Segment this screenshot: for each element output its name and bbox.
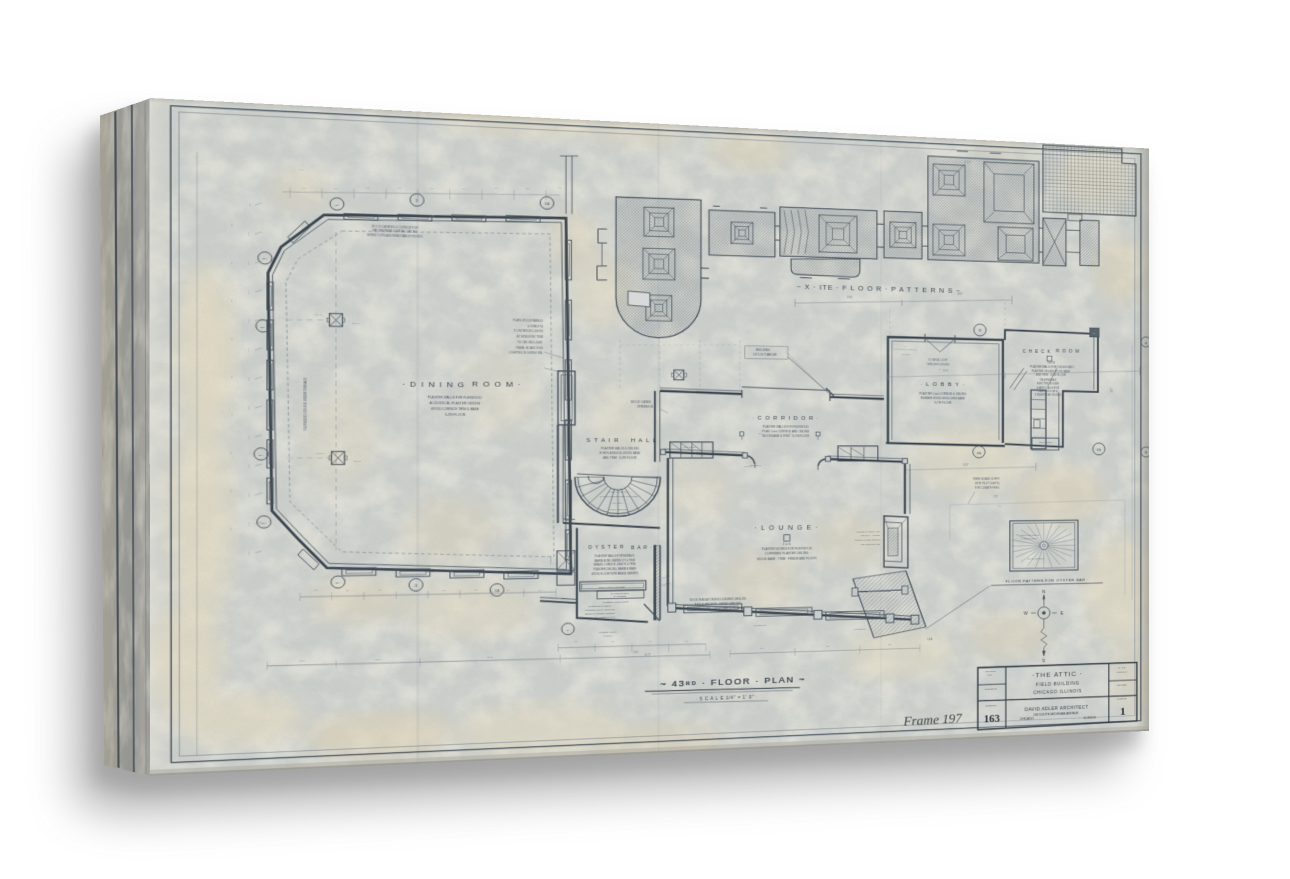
svg-text:3'6: 3'6 xyxy=(230,527,233,530)
svg-text:5'0": 5'0" xyxy=(247,261,251,265)
svg-text:7B: 7B xyxy=(978,330,981,333)
svg-text:AND IRON GRATE: AND IRON GRATE xyxy=(860,542,880,546)
svg-text:19'6": 19'6" xyxy=(957,292,964,295)
svg-text:AND TRIM · X-ITE FLOOR: AND TRIM · X-ITE FLOOR xyxy=(1036,373,1067,377)
svg-text:13 A: 13 A xyxy=(927,637,932,640)
svg-text:PRIV. BOOTH: PRIV. BOOTH xyxy=(683,447,696,449)
svg-text:5'0: 5'0 xyxy=(888,642,891,645)
svg-text:CHICAGO: CHICAGO xyxy=(1020,717,1034,721)
svg-text:DRAWN BY: DRAWN BY xyxy=(986,670,997,673)
svg-text:X-ITE FLOOR: X-ITE FLOOR xyxy=(445,413,466,417)
svg-text:5'0": 5'0" xyxy=(247,435,251,439)
svg-text:S: S xyxy=(1042,659,1045,664)
svg-text:STONE MANTEL AND: STONE MANTEL AND xyxy=(856,530,880,534)
svg-text:5'0: 5'0 xyxy=(494,186,498,190)
svg-text:PLASTER CEMENT STEEL FLEXWOOD: PLASTER CEMENT STEEL FLEXWOOD xyxy=(600,495,639,498)
svg-text:3'6: 3'6 xyxy=(230,299,233,302)
svg-text:5'0": 5'0" xyxy=(247,464,251,468)
svg-text:66 TB: 66 TB xyxy=(1043,445,1049,447)
svg-text:26A: 26A xyxy=(262,521,267,525)
svg-text:SHELF PANEL MLDGS: SHELF PANEL MLDGS xyxy=(855,538,880,542)
svg-text:5'0: 5'0 xyxy=(826,644,829,647)
svg-text:BY OWNERS: BY OWNERS xyxy=(614,596,627,598)
svg-text:3'6: 3'6 xyxy=(230,375,233,378)
svg-text:PLASTER WALLS FOR MURALS,: PLASTER WALLS FOR MURALS, xyxy=(595,554,635,558)
svg-text:5'0: 5'0 xyxy=(685,639,689,642)
svg-text:1: 1 xyxy=(1120,705,1126,718)
svg-text:31: 31 xyxy=(415,199,418,203)
svg-text:OPENING W: OPENING W xyxy=(637,405,653,409)
svg-text:10'6 W: 10'6 W xyxy=(1047,362,1055,365)
svg-text:5'0": 5'0" xyxy=(247,203,251,207)
svg-text:WOOD ·CASED: WOOD ·CASED xyxy=(631,400,652,404)
svg-text:5'0": 5'0" xyxy=(247,377,251,381)
svg-text:N: N xyxy=(1042,590,1045,595)
svg-text:E: E xyxy=(1060,612,1063,617)
svg-text:PLASTER Cove CORNICE & CEILING: PLASTER Cove CORNICE & CEILING xyxy=(919,392,966,396)
svg-text:5'0: 5'0 xyxy=(334,186,338,190)
svg-text:5'0": 5'0" xyxy=(247,493,251,497)
svg-text:5'8: 5'8 xyxy=(648,639,652,642)
svg-text:7'4": 7'4" xyxy=(300,167,305,171)
svg-text:MARBLEIZED WAINSCOT & TRIM: MARBLEIZED WAINSCOT & TRIM xyxy=(594,558,635,562)
svg-text:BRASS STRIPS W: BRASS STRIPS W xyxy=(1027,557,1045,560)
svg-text:K.E.M.: K.E.M. xyxy=(987,675,993,677)
svg-text:CUT-OUT ABOVE: CUT-OUT ABOVE xyxy=(753,353,778,357)
svg-text:X-ITE FLOOR: X-ITE FLOOR xyxy=(934,401,952,404)
svg-text:WOOD BASE & TRIM · X-ITE FLOOR: WOOD BASE & TRIM · X-ITE FLOOR xyxy=(762,434,810,437)
svg-text:TO METAL LIGHT: TO METAL LIGHT xyxy=(928,358,948,362)
svg-text:19'6": 19'6" xyxy=(1069,366,1075,369)
svg-text:24: 24 xyxy=(414,584,417,588)
svg-text:3'6: 3'6 xyxy=(230,223,233,226)
svg-text:5'0: 5'0 xyxy=(526,186,530,190)
svg-text:D A T E: D A T E xyxy=(1118,666,1125,669)
svg-text:JAN 31,1934: JAN 31,1934 xyxy=(1117,671,1128,674)
svg-text:FREE WOOD RAIL: FREE WOOD RAIL xyxy=(609,491,629,494)
svg-text:TILE RISERS & TREADS: TILE RISERS & TREADS xyxy=(606,512,630,515)
svg-text:CLOSED ABOVE: CLOSED ABOVE xyxy=(599,631,617,634)
svg-text:4A: 4A xyxy=(1145,452,1148,455)
svg-text:· O Y S T E R: · O Y S T E R xyxy=(583,545,624,551)
svg-text:14'1 3/4: 14'1 3/4 xyxy=(902,352,911,355)
svg-text:31'9": 31'9" xyxy=(633,651,639,655)
svg-text:CAP: CAP xyxy=(666,575,671,578)
svg-text:163: 163 xyxy=(984,712,1000,725)
svg-text:· L O B B Y ·: · L O B B Y · xyxy=(920,382,965,388)
svg-text:5'0: 5'0 xyxy=(430,186,434,190)
svg-text:W: W xyxy=(939,368,942,371)
svg-text:BENCH CABINET FRONTS: BENCH CABINET FRONTS xyxy=(585,612,615,616)
svg-text:RUBBER TILE FLOOR: RUBBER TILE FLOOR xyxy=(603,600,629,604)
svg-text:10'6": 10'6" xyxy=(375,657,381,661)
svg-text:5'0: 5'0 xyxy=(462,186,466,190)
svg-text:LIGHTING IN DINING RM.: LIGHTING IN DINING RM. xyxy=(509,351,543,355)
svg-text:4'6: 4'6 xyxy=(903,345,906,348)
svg-text:5'0": 5'0" xyxy=(247,551,251,555)
svg-text:GREY PINK & BUFF: GREY PINK & BUFF xyxy=(1021,534,1040,537)
svg-text:5'0": 5'0" xyxy=(247,232,251,236)
svg-text:WOOD CORNICE TRIM & BASE: WOOD CORNICE TRIM & BASE xyxy=(431,407,480,411)
svg-text:FLOORING PANELS,: FLOORING PANELS, xyxy=(588,604,611,608)
svg-text:TO INTERIOR LIGHTS: TO INTERIOR LIGHTS xyxy=(514,330,543,334)
svg-text:COFFERED PLASTER CEILING: COFFERED PLASTER CEILING xyxy=(765,552,809,556)
svg-text:10'6 W: 10'6 W xyxy=(354,461,362,463)
svg-text:ORDER NO: ORDER NO xyxy=(985,705,996,708)
svg-text:4A: 4A xyxy=(1145,342,1148,345)
svg-text:PLASTER WALLS FOR FLEXWOOD: PLASTER WALLS FOR FLEXWOOD xyxy=(763,425,809,429)
svg-text:FOR FLEXWOOD WOOD BASE: FOR FLEXWOOD WOOD BASE xyxy=(599,452,640,455)
svg-text:WITH PILOT LIGHTS,: WITH PILOT LIGHTS, xyxy=(975,482,1000,485)
svg-text:5'0: 5'0 xyxy=(398,186,402,190)
svg-text:28A: 28A xyxy=(260,325,265,329)
svg-text:PLAS. Cove CORNICE AND CEILING: PLAS. Cove CORNICE AND CEILING xyxy=(762,430,809,433)
svg-text:R O O M: R O O M xyxy=(1056,350,1080,355)
svg-text:AT ELEV.: AT ELEV. xyxy=(603,635,613,638)
svg-text:3'6: 3'6 xyxy=(230,413,233,416)
svg-text:CREAM PILE COUNTER: CREAM PILE COUNTER xyxy=(598,585,625,589)
svg-text:FOR CLIMATE FEED.: FOR CLIMATE FEED. xyxy=(975,486,1000,489)
svg-text:SHEET No: SHEET No xyxy=(1117,697,1127,701)
svg-text:10'6 W: 10'6 W xyxy=(317,453,325,455)
svg-text:5'0: 5'0 xyxy=(760,646,764,649)
svg-text:8 5a W: 8 5a W xyxy=(783,542,791,545)
svg-text:46A: 46A xyxy=(977,452,981,455)
svg-text:24'0": 24'0" xyxy=(487,655,493,659)
svg-text:H A L L: H A L L xyxy=(631,438,657,444)
svg-text:10'6": 10'6" xyxy=(963,464,969,467)
svg-text:B A R ·: B A R · xyxy=(631,545,652,550)
svg-text:ACOUSTICAL PLASTER CEILING: ACOUSTICAL PLASTER CEILING xyxy=(430,402,481,406)
svg-text:COAT ROOM: COAT ROOM xyxy=(1039,441,1053,444)
svg-text:· C O R R I D O R ·: · C O R R I D O R · xyxy=(752,416,819,422)
svg-text:FIBRE BOARD SOFFIT: FIBRE BOARD SOFFIT xyxy=(973,478,1000,481)
svg-text:5'0: 5'0 xyxy=(558,186,562,190)
svg-text:3'6: 3'6 xyxy=(758,431,761,434)
svg-text:C H E C K: C H E C K xyxy=(1023,350,1052,355)
svg-text:5'0: 5'0 xyxy=(538,588,542,592)
svg-text:5'0": 5'0" xyxy=(247,406,251,410)
svg-text:W: W xyxy=(999,505,1001,508)
svg-text:FLEXWOOD CEILING UNDER TERR: FLEXWOOD CEILING UNDER TERRACE xyxy=(304,377,308,430)
svg-text:WOOD NOSINGS: WOOD NOSINGS xyxy=(609,508,628,511)
svg-text:RUBBER WOOD MOULDING BASE: RUBBER WOOD MOULDING BASE xyxy=(921,397,966,401)
svg-text:12'6": 12'6" xyxy=(993,495,998,498)
svg-text:25A: 25A xyxy=(336,581,341,585)
svg-text:CTR: CTR xyxy=(666,583,671,585)
svg-text:BAR EQUIPMENT: BAR EQUIPMENT xyxy=(611,592,630,595)
svg-text:BRASS W: BRASS W xyxy=(751,463,762,466)
svg-text:BUILDING: BUILDING xyxy=(756,348,770,352)
svg-text:32A: 32A xyxy=(335,203,340,207)
svg-text:5'0": 5'0" xyxy=(247,319,251,323)
svg-text:5'0: 5'0 xyxy=(506,589,510,592)
svg-text:19'6": 19'6" xyxy=(943,369,949,372)
svg-text:23A: 23A xyxy=(495,589,500,593)
svg-text:VENTILATE UNDER BAR W: VENTILATE UNDER BAR W xyxy=(585,615,616,619)
svg-text:5'0": 5'0" xyxy=(247,348,251,352)
svg-text:TO CEILING LIGHT.: TO CEILING LIGHT. xyxy=(517,341,543,345)
svg-text:MARBLE FLOOR: MARBLE FLOOR xyxy=(1021,538,1037,541)
svg-text:5'0": 5'0" xyxy=(247,290,251,294)
svg-text:· D I N I N G: · D I N I N G xyxy=(402,380,465,389)
svg-text:AT WINDOWS TRIM: AT WINDOWS TRIM xyxy=(517,335,544,339)
svg-text:6'10": 6'10" xyxy=(299,659,305,663)
svg-text:3'6: 3'6 xyxy=(230,261,233,264)
svg-text:PROJECTS: PROJECTS xyxy=(854,627,866,631)
svg-text:W: W xyxy=(1024,612,1028,617)
svg-text:3'6: 3'6 xyxy=(230,451,233,454)
svg-text:19'6": 19'6" xyxy=(847,295,853,298)
svg-text:5'8: 5'8 xyxy=(574,639,578,643)
svg-text:PLASTER WALLS FOR FLEXWOOD: PLASTER WALLS FOR FLEXWOOD xyxy=(428,396,483,400)
svg-text:27A: 27A xyxy=(259,453,264,457)
svg-text:5'0": 5'0" xyxy=(247,522,251,526)
svg-text:30A: 30A xyxy=(545,202,550,206)
svg-text:REVISED: REVISED xyxy=(1117,683,1127,686)
svg-text:3'6: 3'6 xyxy=(230,337,233,340)
svg-text:14'6": 14'6" xyxy=(1111,386,1114,392)
svg-text:10'6 W: 10'6 W xyxy=(352,323,360,325)
svg-text:41A: 41A xyxy=(1097,449,1101,452)
svg-text:5'0: 5'0 xyxy=(366,186,370,190)
svg-text:THROUGH CEILING: THROUGH CEILING xyxy=(927,363,950,367)
svg-text:5'0: 5'0 xyxy=(474,589,478,592)
svg-text:S T A I R: S T A I R xyxy=(586,438,619,444)
svg-text:· L O U N G E ·: · L O U N G E · xyxy=(754,524,819,532)
svg-text:FRONTS & BAR. HEIGHTS: FRONTS & BAR. HEIGHTS xyxy=(585,608,615,612)
svg-text:PROJECTS: PROJECTS xyxy=(754,623,766,627)
svg-text:R O O M ·: R O O M · xyxy=(472,380,522,389)
svg-text:PLASTER WALLS & CEILING: PLASTER WALLS & CEILING xyxy=(601,447,639,450)
svg-text:3'6: 3'6 xyxy=(230,489,233,492)
svg-text:HEARTH · WOOD: HEARTH · WOOD xyxy=(861,534,880,538)
svg-text:3'9: 3'9 xyxy=(611,639,615,642)
svg-text:29A: 29A xyxy=(262,257,267,261)
svg-text:10'6 W: 10'6 W xyxy=(315,315,323,317)
svg-text:PANEL BOARD FOR: PANEL BOARD FOR xyxy=(516,346,543,350)
svg-text:( No. 12 R ): ( No. 12 R ) xyxy=(612,502,624,505)
svg-text:3'6: 3'6 xyxy=(788,431,791,434)
svg-text:CLOSET: CLOSET xyxy=(550,556,552,564)
svg-text:PLAIN WOOD PANELS: PLAIN WOOD PANELS xyxy=(513,319,543,323)
svg-text:3 TELEPHONE ROOMS: 3 TELEPHONE ROOMS xyxy=(1035,394,1061,397)
svg-text:& SHELF W: & SHELF W xyxy=(528,325,543,329)
svg-text:AND TRIM · X-ITE FLOOR: AND TRIM · X-ITE FLOOR xyxy=(603,456,637,459)
svg-text:ILLINOIS: ILLINOIS xyxy=(1083,716,1096,720)
svg-text:24: 24 xyxy=(567,628,570,632)
